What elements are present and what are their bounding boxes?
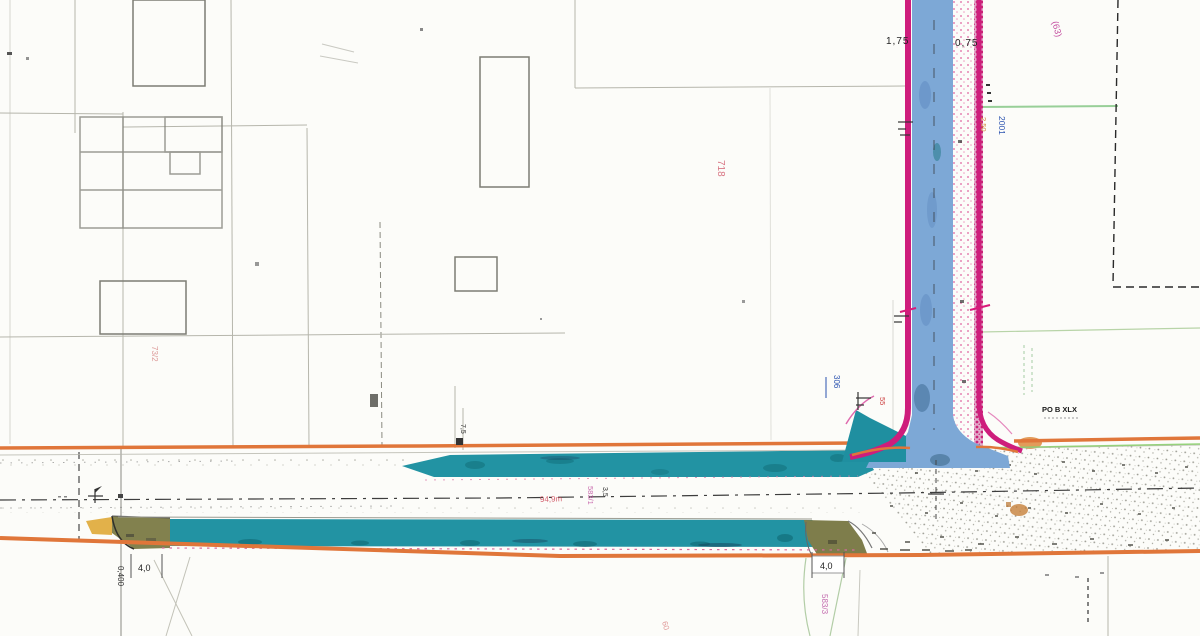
building-outlines	[7, 0, 745, 407]
dim-left-top: 1,75	[886, 36, 909, 47]
dim-3-5: 3,5	[601, 487, 608, 497]
parcel-583-3: 583/3	[820, 594, 829, 615]
farm-building-cluster	[80, 117, 222, 228]
road-edge-left-magenta	[850, 0, 908, 457]
driveway-center	[804, 520, 888, 556]
station-left-label: 0,400	[116, 566, 125, 587]
site-plan-drawing: 4,0 0,400 4,0 1,75 0,75 (63) 718 73/2 20…	[0, 0, 1200, 636]
new-pavement-upper	[402, 450, 874, 477]
illegible-text-marks	[1087, 578, 1089, 622]
dim-drive-left-label: 4,0	[138, 563, 151, 573]
dim-right-top: 0,75	[955, 38, 978, 49]
utility-label-2001: 2001	[997, 116, 1007, 135]
survey-point-label: PO B XLX	[1042, 405, 1077, 414]
dim-7-5: 7,5	[459, 424, 466, 434]
marker-55: 55	[878, 397, 887, 405]
marker-306-group: 306	[826, 375, 841, 398]
parcel-60: 60	[660, 620, 671, 631]
side-road-vertical	[842, 0, 1032, 522]
road-edge-right-magenta	[979, 0, 1022, 451]
corridor-boundary-top	[0, 443, 860, 448]
marker-306: 306	[832, 375, 841, 389]
parcel-number-718: 718	[715, 160, 726, 177]
dim-drive-center-label: 4,0	[820, 561, 833, 571]
station-marker	[58, 486, 123, 503]
driveway-dimension-center: 4,0	[812, 552, 844, 578]
parcel-number-63: (63)	[1050, 20, 1064, 38]
corridor-boundary-top-right	[1014, 438, 1200, 441]
dim-7-5-group: 7,5	[456, 424, 466, 445]
parcel-583-1: 583/1	[586, 486, 595, 505]
dim-2-50: 2,50	[979, 117, 988, 132]
length-label: 94,9m	[540, 494, 563, 504]
survey-point-group: PO B XLX	[1042, 405, 1080, 418]
soil-patch	[1010, 504, 1028, 516]
below-corridor-lines	[154, 556, 1108, 636]
parcel-number-73-2: 73/2	[150, 346, 159, 362]
driveway-dimension-left: 4,0 0,400	[116, 554, 162, 587]
new-pavement-lower	[128, 519, 852, 547]
main-road-corridor	[0, 437, 1200, 556]
site-plan-svg: 4,0 0,400 4,0 1,75 0,75 (63) 718 73/2 20…	[0, 0, 1200, 636]
